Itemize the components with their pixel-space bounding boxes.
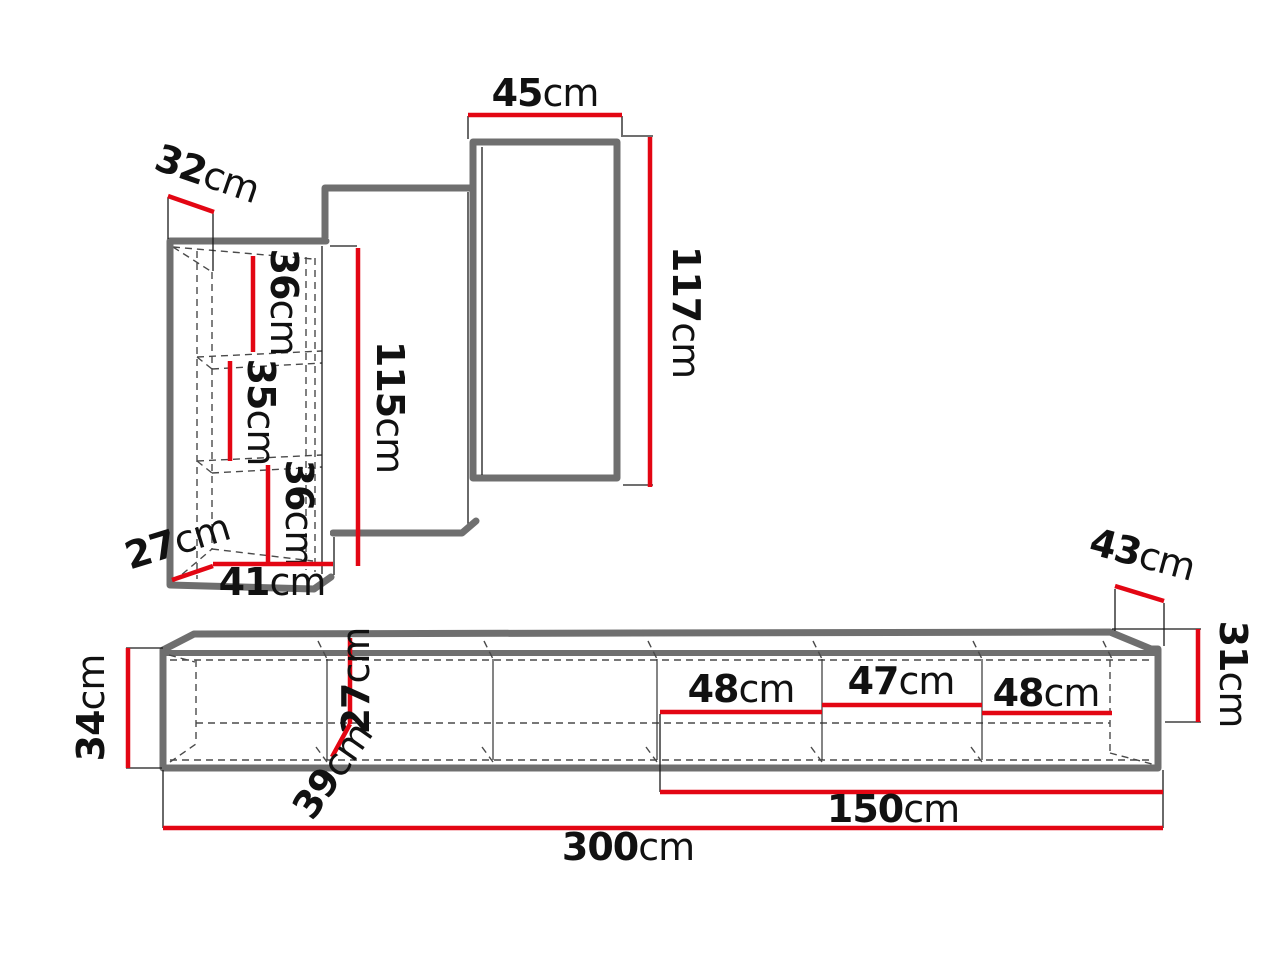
right-panel-outline	[473, 142, 617, 478]
dim-300cm-label: 300cm	[562, 825, 694, 869]
diagram-canvas: 32cm 45cm 117cm 115cm 36cm 35cm	[0, 0, 1280, 960]
dim-41cm: 41cm	[213, 560, 333, 604]
dim-27cm-unit: 27cm	[334, 628, 378, 735]
dim-117cm-label: 117cm	[664, 246, 708, 378]
dim-35cm-shelf2-label: 35cm	[239, 359, 283, 466]
dim-45cm-ticks	[468, 116, 622, 139]
dim-36cm-shelf3-label: 36cm	[277, 460, 321, 567]
dim-34cm: 34cm	[69, 648, 163, 768]
dim-32cm-label: 32cm	[150, 136, 265, 212]
dim-115cm-label: 115cm	[368, 341, 412, 473]
dim-48cm-comp3: 48cm	[982, 671, 1112, 715]
dim-45cm: 45cm	[468, 71, 622, 139]
dim-48cm-comp1-label: 48cm	[688, 667, 795, 711]
dim-45cm-label: 45cm	[492, 71, 599, 115]
dim-43cm-label: 43cm	[1085, 519, 1200, 589]
dim-150cm-label: 150cm	[827, 787, 959, 831]
dim-27cm-unit-label: 27cm	[334, 628, 378, 735]
dim-31cm-label: 31cm	[1211, 621, 1255, 728]
dim-41cm-label: 41cm	[219, 560, 326, 604]
furniture-dimension-diagram: 32cm 45cm 117cm 115cm 36cm 35cm	[0, 0, 1280, 960]
dim-48cm-comp3-label: 48cm	[993, 671, 1100, 715]
dim-36cm-shelf1-label: 36cm	[262, 249, 306, 356]
top-assembly: 32cm 45cm 117cm 115cm 36cm 35cm	[120, 71, 708, 604]
dim-34cm-label: 34cm	[69, 655, 113, 762]
dim-43cm-line	[1115, 586, 1164, 601]
right-panel	[473, 142, 617, 478]
dim-117cm: 117cm	[623, 136, 708, 487]
dim-34cm-ticks	[126, 648, 163, 768]
dim-43cm: 43cm	[1085, 519, 1200, 646]
dim-32cm-line	[168, 196, 214, 212]
dim-47cm-comp2-label: 47cm	[848, 659, 955, 703]
